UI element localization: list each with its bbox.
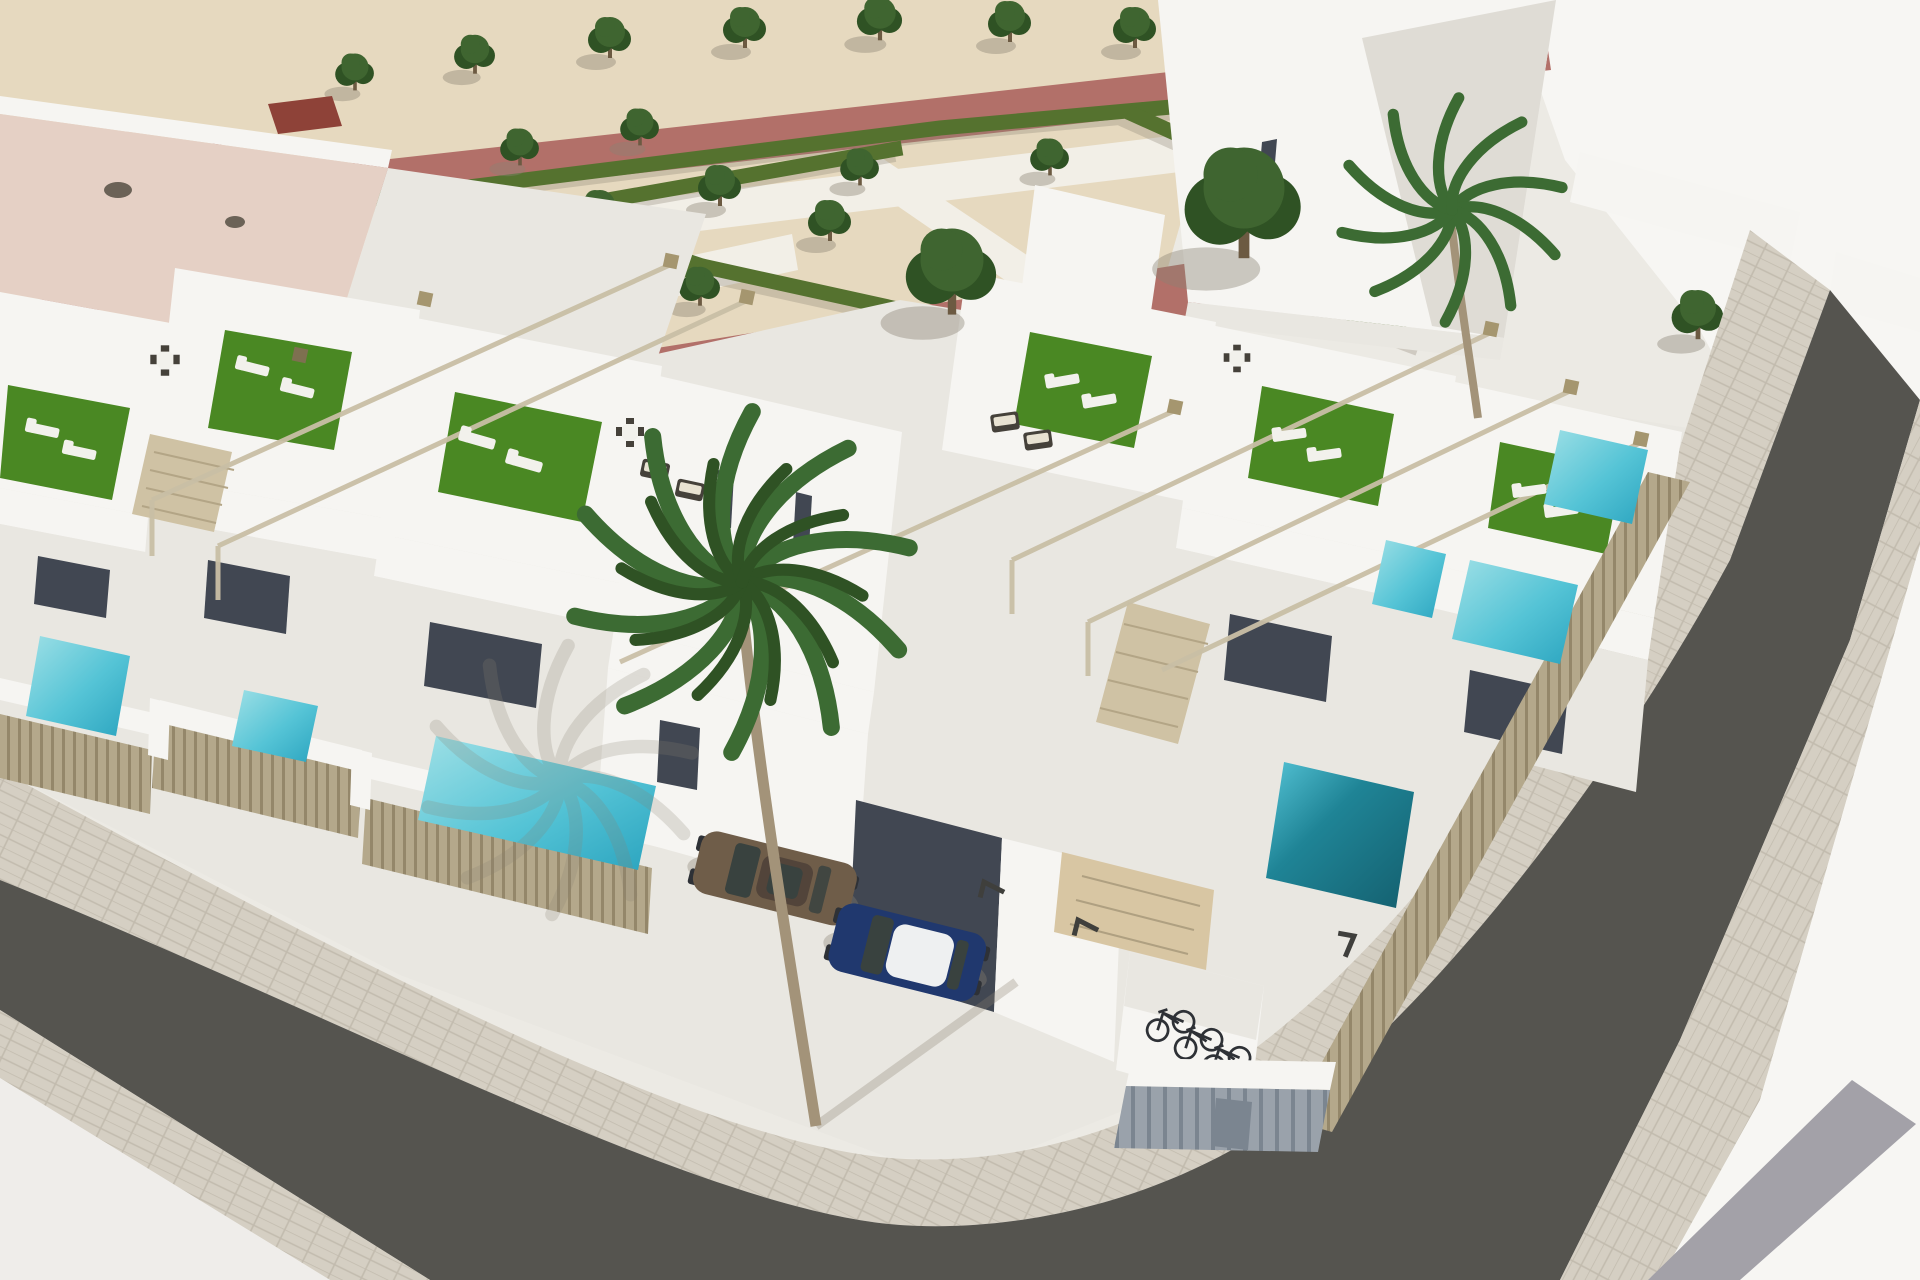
gate-pillar — [148, 698, 170, 760]
utility-shed — [1114, 1058, 1336, 1152]
aerial-render — [0, 0, 1920, 1280]
render-stage — [0, 0, 1920, 1280]
gate-pillar — [350, 748, 372, 810]
roof-vent — [104, 182, 132, 198]
roof-vent — [225, 216, 245, 228]
shed-roof — [1126, 1058, 1336, 1090]
shed-door — [1212, 1098, 1252, 1150]
